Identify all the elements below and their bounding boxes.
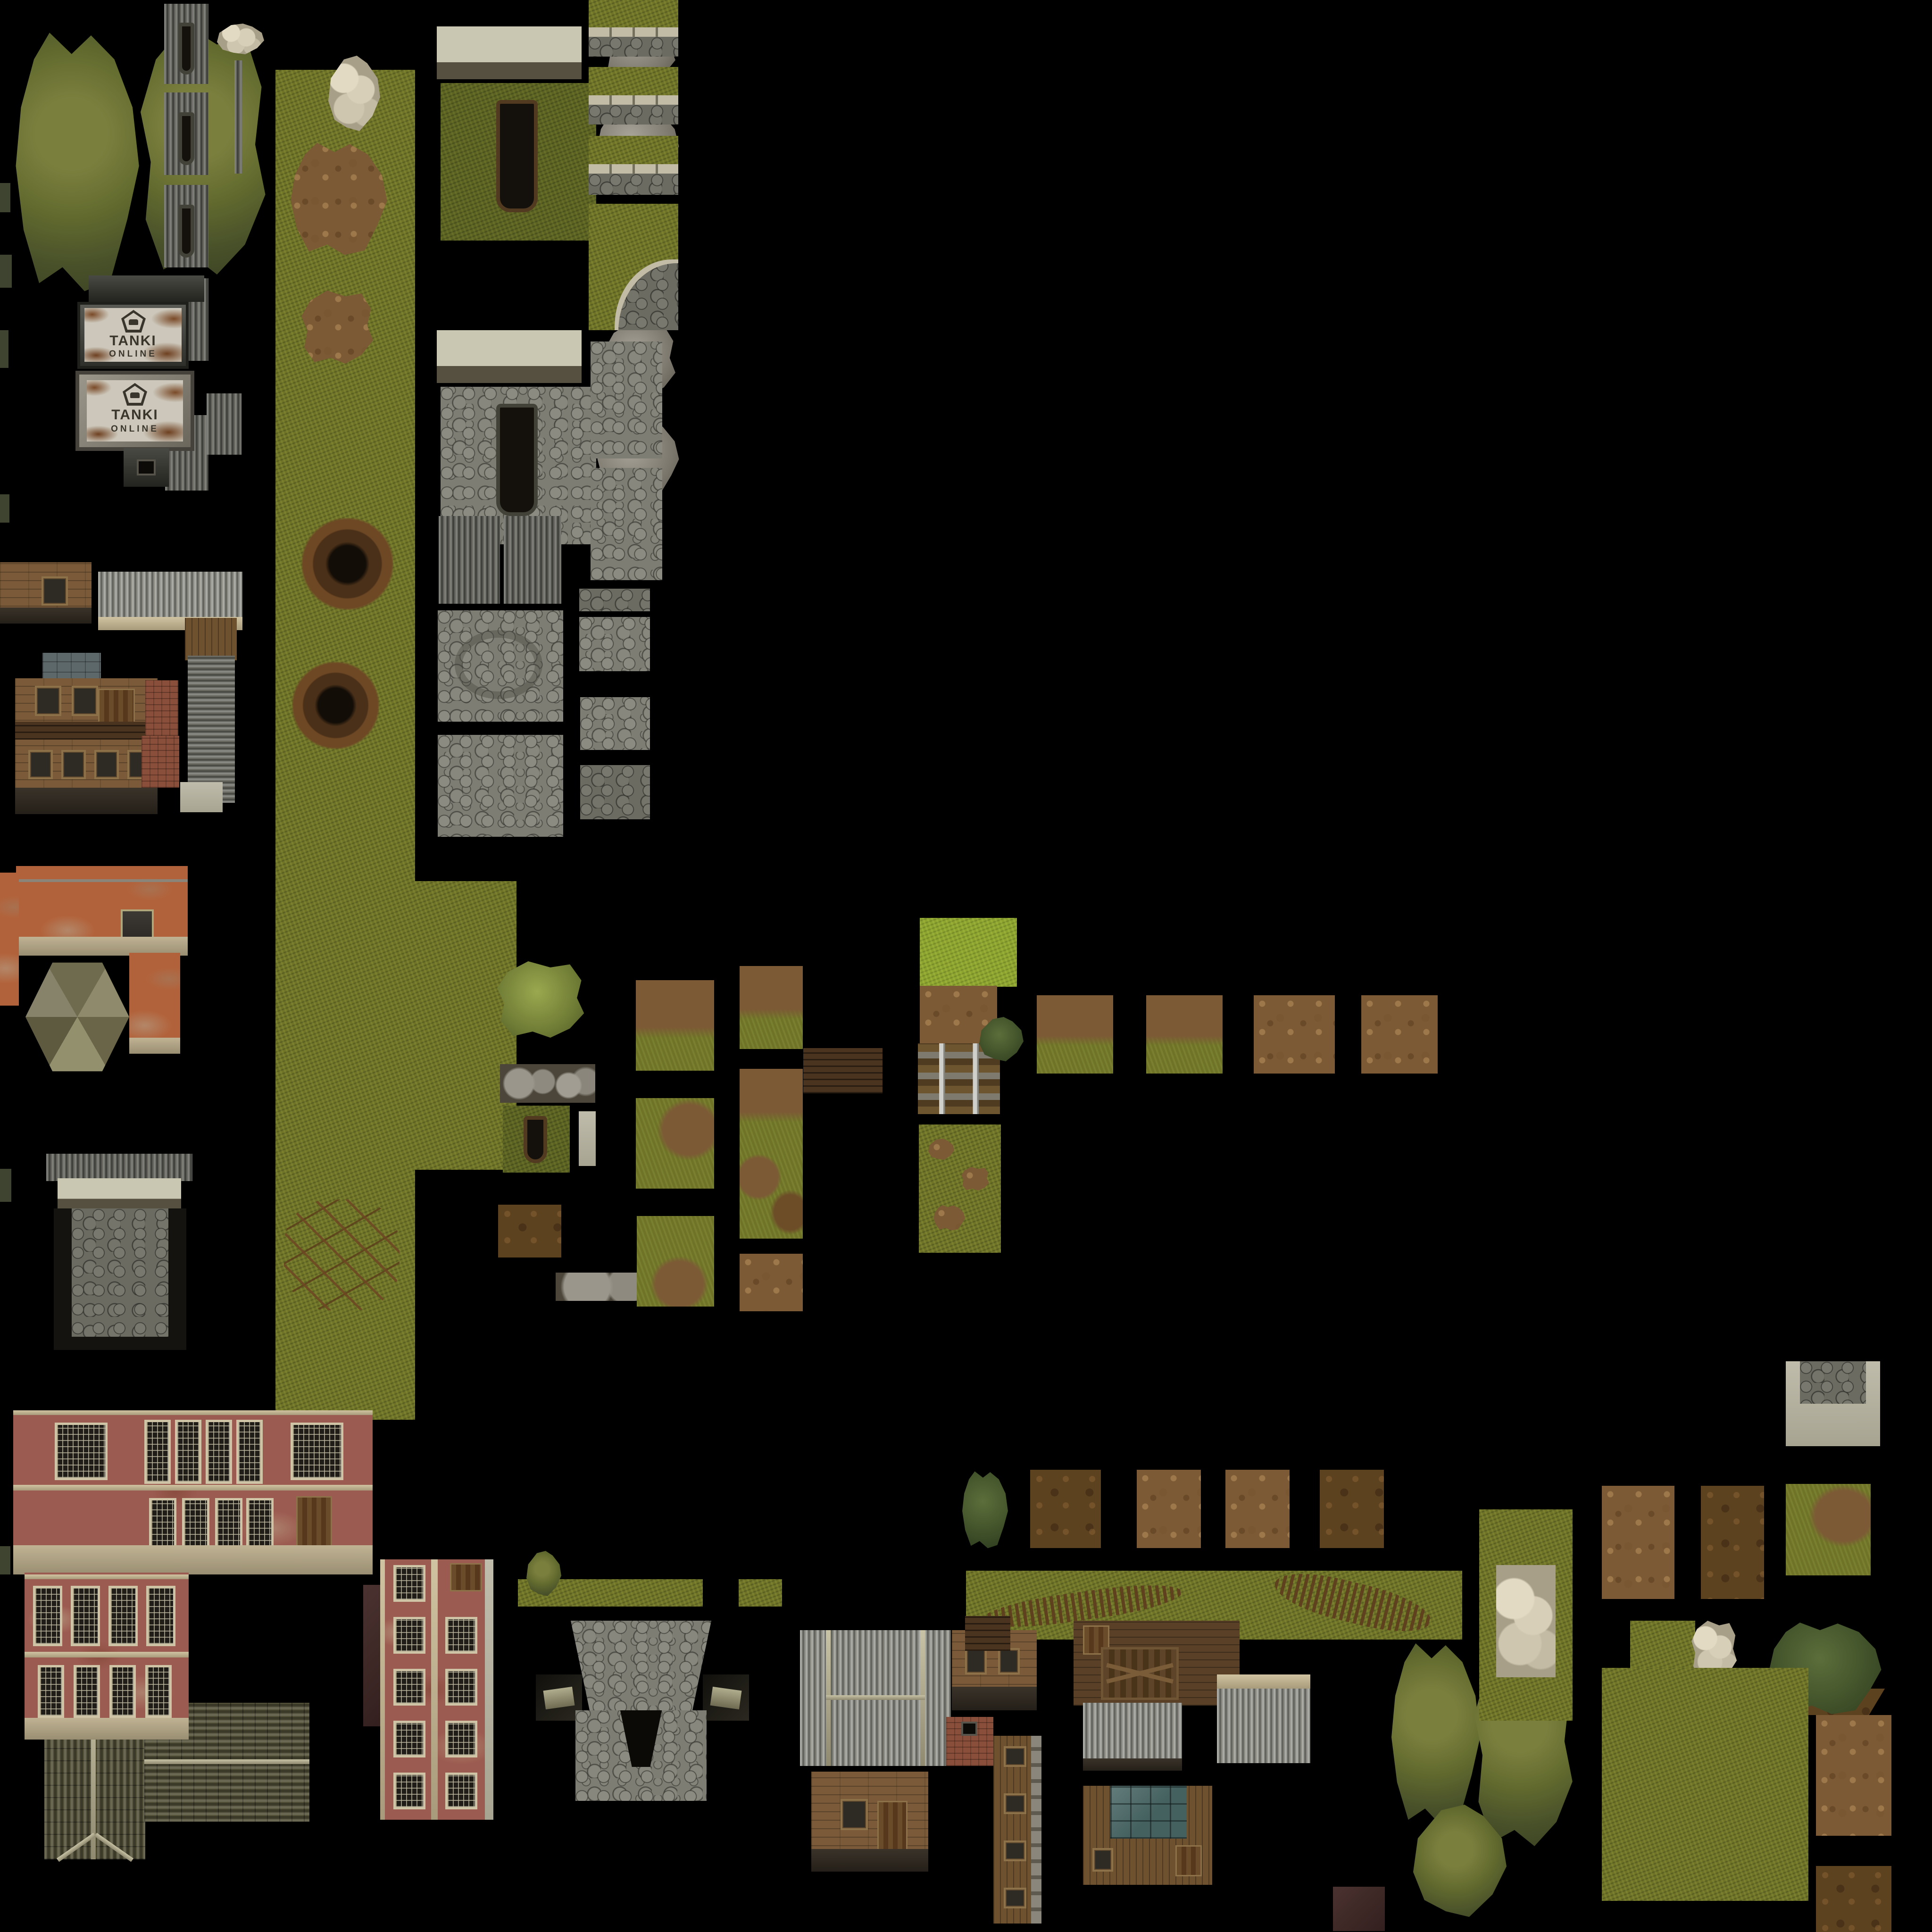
billboard-face: TANKIONLINE	[84, 308, 182, 362]
prison-plinth	[13, 1545, 373, 1574]
wood-slat-block	[803, 1048, 883, 1093]
tower-hatch	[450, 1563, 482, 1591]
brick-pier	[142, 736, 179, 788]
dirt-tile	[1816, 1866, 1891, 1932]
gate-lintel	[58, 1178, 181, 1208]
cornice-line	[13, 1410, 373, 1415]
prison-window	[291, 1423, 343, 1480]
path-curb	[589, 95, 678, 105]
house-base	[15, 788, 158, 814]
dirt-tile	[1225, 1470, 1290, 1548]
metal-wall-tall	[188, 656, 235, 803]
greenhouse-hatch	[1175, 1845, 1202, 1876]
wing-slab	[710, 1687, 742, 1709]
edge-fragment	[0, 330, 8, 368]
tank-icon	[129, 319, 138, 325]
cabin-window	[841, 1799, 868, 1830]
dirt-band-tile	[1037, 995, 1113, 1074]
hex-roof	[25, 960, 129, 1074]
burn-crater	[292, 662, 379, 749]
gray-wall-c	[164, 185, 208, 267]
prison-plinth	[25, 1718, 189, 1740]
burn-crater	[301, 518, 393, 610]
grass-field-corner	[1602, 1668, 1808, 1901]
cabin-base	[952, 1687, 1037, 1710]
dirt-grass-tile	[636, 1098, 714, 1189]
cobble-tile	[580, 765, 650, 819]
ridge-arm	[57, 1833, 96, 1862]
tree-canopy-left	[13, 27, 143, 294]
dirt-clump	[961, 1167, 990, 1191]
cabin-base	[0, 608, 92, 624]
tanki-logo-pentagon	[121, 310, 146, 333]
grass-strip-gate	[739, 1579, 782, 1607]
house-window	[35, 686, 61, 716]
billboard-subtitle: ONLINE	[100, 424, 169, 435]
plank-window	[1004, 1746, 1026, 1767]
gate-frame-left	[54, 1208, 72, 1350]
tower-window	[393, 1721, 425, 1757]
prison-facade-upper	[13, 1410, 373, 1574]
wood-house-two-story	[15, 678, 158, 814]
prison-window	[74, 1665, 100, 1718]
wall-slot	[178, 23, 194, 75]
plank-window	[1004, 1793, 1026, 1814]
prison-window	[108, 1586, 138, 1646]
wall-cap	[1217, 1674, 1310, 1689]
dirt-patch-large	[289, 141, 390, 256]
tower-window	[445, 1773, 477, 1809]
rock-outcrop	[328, 56, 380, 131]
plank-band	[15, 722, 158, 740]
edge-fragment	[0, 255, 12, 288]
gray-wall-f	[439, 516, 500, 604]
prison-window	[109, 1665, 136, 1718]
stucco-sliver	[0, 873, 19, 1006]
metal-post	[207, 393, 241, 455]
dirt-tile	[1816, 1715, 1891, 1836]
plank-window	[1004, 1888, 1026, 1908]
trench-grass-small	[503, 1106, 570, 1173]
stone-edge	[1031, 1736, 1041, 1924]
dirt-grass-tile	[740, 1069, 803, 1152]
billboard-top-bar	[89, 275, 204, 302]
gate-wing-right	[703, 1674, 749, 1721]
edge-fragment	[0, 1546, 10, 1574]
cabin-window	[965, 1648, 987, 1674]
dirt-grass-tile	[636, 980, 714, 1071]
prison-window	[206, 1420, 232, 1484]
path-corner-tile	[589, 204, 678, 330]
cracked-stone-cap	[1800, 1361, 1866, 1404]
wing-slab	[543, 1687, 575, 1709]
dirt-patch-small	[301, 291, 375, 364]
metal-wall-capped	[1217, 1674, 1310, 1763]
tower-window	[393, 1669, 425, 1706]
mosaic-oval-ring	[455, 630, 542, 699]
cobble-slab-plain	[438, 735, 563, 837]
stone-gate-base	[575, 1710, 707, 1801]
prison-window	[144, 1420, 171, 1484]
dirt-grass-tile	[740, 1151, 803, 1239]
dirt-scratches	[284, 1199, 400, 1310]
plank-window	[1004, 1840, 1026, 1861]
wall-slot	[178, 205, 194, 258]
tower-concrete-band	[485, 1559, 493, 1820]
path-curb	[589, 164, 678, 174]
wall-slot	[178, 112, 194, 165]
billboard-title: TANKI	[99, 333, 167, 349]
cabin-facade-top	[0, 562, 92, 624]
house-window	[94, 750, 119, 779]
cornice-line	[13, 1485, 373, 1491]
cabin-window	[42, 576, 68, 606]
chimney-top	[946, 1717, 993, 1766]
wall-plinth	[1083, 1758, 1182, 1771]
billboard-face: TANKIONLINE	[87, 380, 183, 441]
rock-ledge	[500, 1064, 595, 1103]
billboard-sign-framed: TANKIONLINE	[75, 371, 194, 451]
path-curve	[615, 259, 678, 330]
bunker-gate	[33, 1154, 207, 1356]
grass-rock-strip	[1479, 1509, 1573, 1721]
gray-wall-g	[504, 516, 561, 604]
tire-tracks	[1270, 1564, 1435, 1641]
gray-wall-b	[164, 92, 208, 175]
cobble-tile	[579, 617, 650, 671]
grass-field-side	[415, 881, 516, 1170]
billboard-sign: TANKIONLINE	[77, 302, 189, 369]
prison-window	[236, 1420, 263, 1484]
rock-chunk-top	[217, 24, 264, 54]
cobble-slab-mosaic	[438, 610, 563, 722]
red-tower	[380, 1559, 493, 1820]
path-cobble	[589, 37, 678, 57]
bush-mid	[497, 961, 586, 1038]
wall-pipe	[16, 879, 188, 882]
dirt-band-tile	[1254, 995, 1335, 1074]
gray-wall-a	[164, 4, 208, 84]
plank-piece	[185, 618, 237, 660]
prison-window	[146, 1586, 175, 1646]
dirt-tile	[1701, 1486, 1764, 1599]
cobble-tile	[580, 697, 650, 750]
path-edge-tile	[589, 0, 678, 57]
chimney-hole	[961, 1722, 977, 1736]
dirt-clump	[928, 1139, 954, 1160]
stone-gate-roof	[571, 1621, 711, 1714]
prison-window	[38, 1665, 64, 1718]
billboard-bracket	[124, 448, 169, 487]
cobble-tile	[579, 589, 650, 611]
ridge-arm	[94, 1833, 133, 1862]
edge-fragment	[0, 183, 10, 212]
roof-ridge-h	[826, 1695, 925, 1700]
texture-atlas-sheet: TANKIONLINETANKIONLINE	[0, 0, 1932, 1932]
billboard-title: TANKI	[100, 408, 169, 423]
warehouse-roof	[800, 1630, 951, 1766]
trench-slot-small	[524, 1116, 547, 1163]
prison-window	[145, 1665, 172, 1718]
dirt-tile	[1137, 1470, 1201, 1548]
concrete-pillar	[194, 866, 239, 1061]
prison-window	[33, 1586, 62, 1646]
metal-wall	[1083, 1703, 1182, 1771]
brick-pier	[145, 680, 178, 736]
metal-strip-thin	[234, 60, 242, 174]
trench-grass-tile	[441, 83, 596, 241]
cabin-base	[811, 1849, 928, 1872]
tower-window	[393, 1617, 425, 1654]
dirt-grass-tile	[740, 966, 803, 1049]
stone-lintel	[437, 26, 582, 79]
stucco-wall-door	[16, 866, 188, 956]
tower-window	[393, 1565, 425, 1602]
concrete-block-small	[180, 782, 223, 812]
glass-panels	[1110, 1786, 1187, 1839]
trench-slot	[496, 404, 538, 516]
stone-concrete-block	[1786, 1361, 1880, 1446]
cabin-door	[877, 1801, 908, 1854]
plank-tower	[993, 1736, 1041, 1924]
stucco-column	[129, 953, 180, 1054]
billboard-subtitle: ONLINE	[99, 349, 167, 360]
wood-posts-piece	[965, 1616, 1010, 1651]
path-curb	[589, 27, 678, 37]
ridge-beam-h	[144, 1759, 309, 1764]
cobble-long	[591, 468, 662, 580]
prison-window	[55, 1423, 108, 1480]
prison-window	[71, 1586, 100, 1646]
house-window	[61, 750, 86, 779]
bush-tall	[961, 1470, 1009, 1549]
cornice-line	[25, 1574, 189, 1579]
barn-door	[1101, 1647, 1179, 1700]
tree-tall	[1390, 1640, 1483, 1827]
tower-window	[445, 1721, 477, 1757]
dark-wedge	[363, 1585, 382, 1726]
pilaster	[431, 1559, 438, 1820]
dirt-tile	[1602, 1486, 1674, 1599]
prison-window	[175, 1420, 201, 1484]
dirt-tile	[1320, 1470, 1384, 1548]
grass-field-column	[275, 70, 415, 1420]
tanki-logo-pentagon	[123, 383, 147, 406]
gate-frame-bottom	[72, 1337, 168, 1350]
pilaster	[380, 1559, 385, 1820]
dirt-grass-tile	[637, 1216, 714, 1307]
tank-icon	[130, 392, 140, 398]
gate-opening	[608, 1710, 674, 1767]
grass-tile-bright	[920, 918, 1017, 987]
boarded-door	[98, 689, 135, 726]
path-cobble	[589, 174, 678, 195]
dirt-tile	[740, 1254, 803, 1311]
prison-facade-lower	[25, 1573, 189, 1740]
bracket-hole	[137, 459, 156, 475]
path-edge-tile	[589, 136, 678, 195]
stone-lintel	[437, 330, 582, 383]
gate-frame-right	[168, 1208, 186, 1350]
crate-dark	[1333, 1887, 1385, 1931]
house-window	[28, 750, 53, 779]
house-window	[72, 686, 98, 716]
cobble-long	[591, 341, 662, 458]
post-small	[579, 1111, 596, 1166]
dirt-grass-tile	[1786, 1484, 1871, 1575]
dirt-clump	[933, 1205, 966, 1231]
gate-court	[72, 1208, 168, 1337]
dirt-band-tile	[1146, 995, 1223, 1074]
cornice-line	[25, 1652, 189, 1657]
tower-window	[393, 1773, 425, 1809]
rock-pile-strip	[1496, 1565, 1556, 1677]
post-row	[46, 1154, 192, 1181]
tower-window	[445, 1669, 477, 1706]
dirt-band-tile	[1361, 995, 1438, 1074]
greenhouse	[1083, 1786, 1212, 1885]
greenhouse-window	[1092, 1848, 1113, 1872]
dirt-tile-shadowed	[498, 1205, 561, 1257]
path-cobble	[589, 105, 678, 125]
edge-fragment	[0, 1169, 11, 1202]
tower-window	[445, 1617, 477, 1654]
trench-slot	[496, 100, 538, 212]
wood-cabin-door	[811, 1772, 928, 1872]
dirt-tile	[1030, 1470, 1101, 1548]
cabin-window	[998, 1648, 1020, 1674]
stucco-plinth	[129, 1038, 180, 1054]
path-edge-tile	[589, 67, 678, 125]
grass-clumps-tile	[919, 1124, 1001, 1253]
barn-facade	[1074, 1621, 1240, 1706]
edge-fragment	[0, 494, 9, 523]
